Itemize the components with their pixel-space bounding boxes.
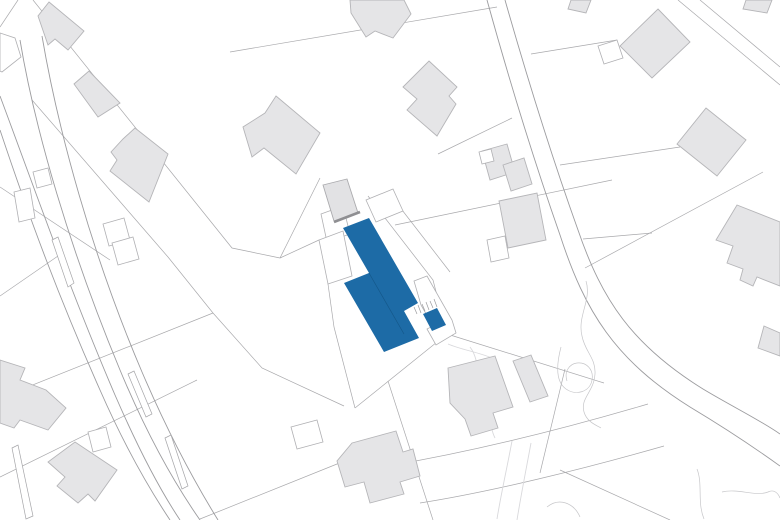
- traffic-island-4: [12, 445, 33, 519]
- building-s-house: [448, 356, 513, 436]
- building-e-big: [716, 205, 780, 286]
- hedge-outline-main: [581, 281, 601, 428]
- building-nw-3: [110, 128, 168, 202]
- traffic-island-1: [52, 237, 74, 287]
- parcel-line-blue-sw: [334, 327, 355, 408]
- parcel-line-cross-road-1: [0, 256, 58, 296]
- building-ne-edge: [743, 0, 772, 13]
- building-n-2: [350, 0, 411, 38]
- vegetation-se-1: [697, 469, 704, 519]
- hedge-outline-loop: [558, 347, 593, 392]
- building-ne-big: [620, 9, 690, 78]
- stair-tread-1: [414, 307, 417, 314]
- vegetation-se-2: [722, 491, 780, 498]
- vegetation-layer: [547, 281, 780, 519]
- building-w-edge: [0, 360, 66, 430]
- parcel-line-se-band-2: [420, 446, 664, 503]
- outline-square-sw: [88, 427, 111, 452]
- stair-tread-2: [418, 305, 421, 313]
- building-n-edge-small: [568, 0, 591, 13]
- parcel-line-se-band-1: [388, 404, 648, 466]
- building-n-3: [403, 61, 457, 136]
- site-plan-svg: [0, 0, 780, 520]
- building-e-edge: [758, 326, 780, 356]
- outline-square-sw-2: [291, 420, 323, 449]
- outline-parking-road-1: [14, 188, 35, 222]
- project-building-main[interactable]: [343, 218, 419, 352]
- parcel-line-se-corner: [560, 470, 670, 520]
- parcel-line-e-low: [583, 233, 652, 239]
- parcel-line-blue-w-corner: [280, 240, 319, 258]
- outline-parking-road-2: [33, 168, 52, 188]
- outline-notch-c-small: [479, 149, 494, 164]
- building-sw-small: [48, 442, 117, 503]
- building-s-narrow: [513, 355, 548, 402]
- vegetation-se-3: [547, 502, 580, 517]
- parcel-line-blue-w-strip: [328, 284, 334, 327]
- faint-path-center-s1: [497, 441, 512, 519]
- parcel-line-bottom: [200, 462, 342, 519]
- building-n-1: [243, 96, 320, 174]
- outline-parcel-w-edge: [0, 33, 21, 72]
- outline-rect-n-of-blue: [366, 189, 403, 222]
- building-ne-house: [677, 108, 746, 176]
- outline-annex-mid: [487, 236, 509, 262]
- building-nw-2: [74, 71, 120, 117]
- outline-rect-w-of-blue-2: [319, 231, 352, 284]
- site-plan-map: [0, 0, 780, 520]
- parcel-line-e-mid: [560, 147, 680, 165]
- building-nw-1: [38, 2, 84, 50]
- outline-annex-ne: [598, 40, 623, 64]
- parcel-line-top-corner: [0, 0, 18, 27]
- traffic-island-2: [128, 371, 152, 417]
- parcel-line-blue-nw: [280, 178, 320, 258]
